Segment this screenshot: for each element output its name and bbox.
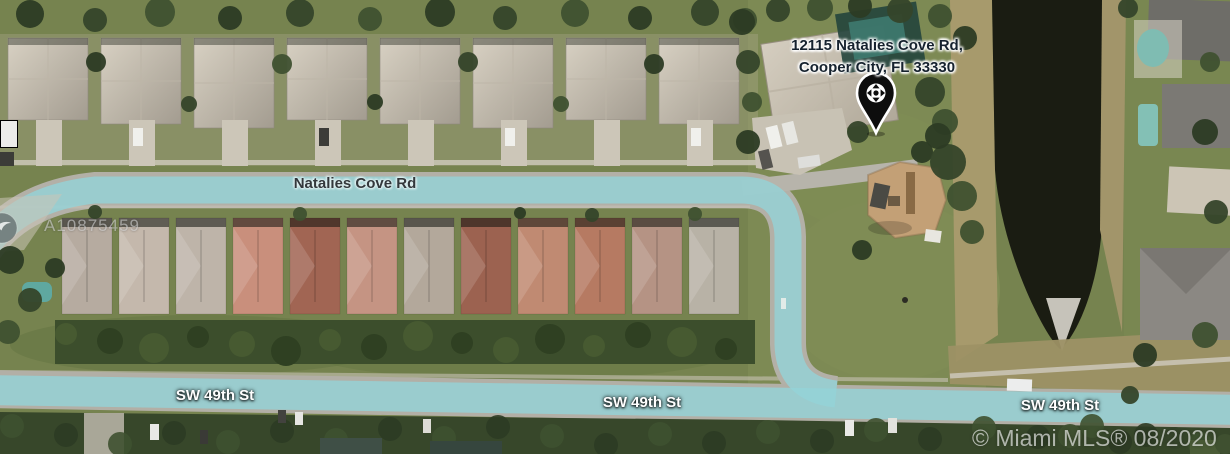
street-label-sw-49th-st-center: SW 49th St <box>590 394 694 411</box>
street-label-sw-49th-st-right: SW 49th St <box>1008 397 1112 414</box>
address-line-1: 12115 Natalies Cove Rd, <box>752 35 1002 57</box>
street-label-sw-49th-st-left: SW 49th St <box>163 387 267 404</box>
location-pin-icon <box>857 73 895 133</box>
mls-listing-id-watermark: A10875459 <box>44 216 204 236</box>
brokerage-logo-watermark <box>0 212 18 244</box>
address-line-2: Cooper City, FL 33330 <box>752 57 1002 79</box>
map-canvas[interactable]: 12115 Natalies Cove Rd, Cooper City, FL … <box>0 0 1230 454</box>
property-pin-marker[interactable] <box>853 71 899 137</box>
property-address-label: 12115 Natalies Cove Rd, Cooper City, FL … <box>752 35 1002 79</box>
mls-attribution: © Miami MLS® 08/2020 <box>972 425 1222 452</box>
street-label-natalies-cove-rd: Natalies Cove Rd <box>277 175 433 192</box>
